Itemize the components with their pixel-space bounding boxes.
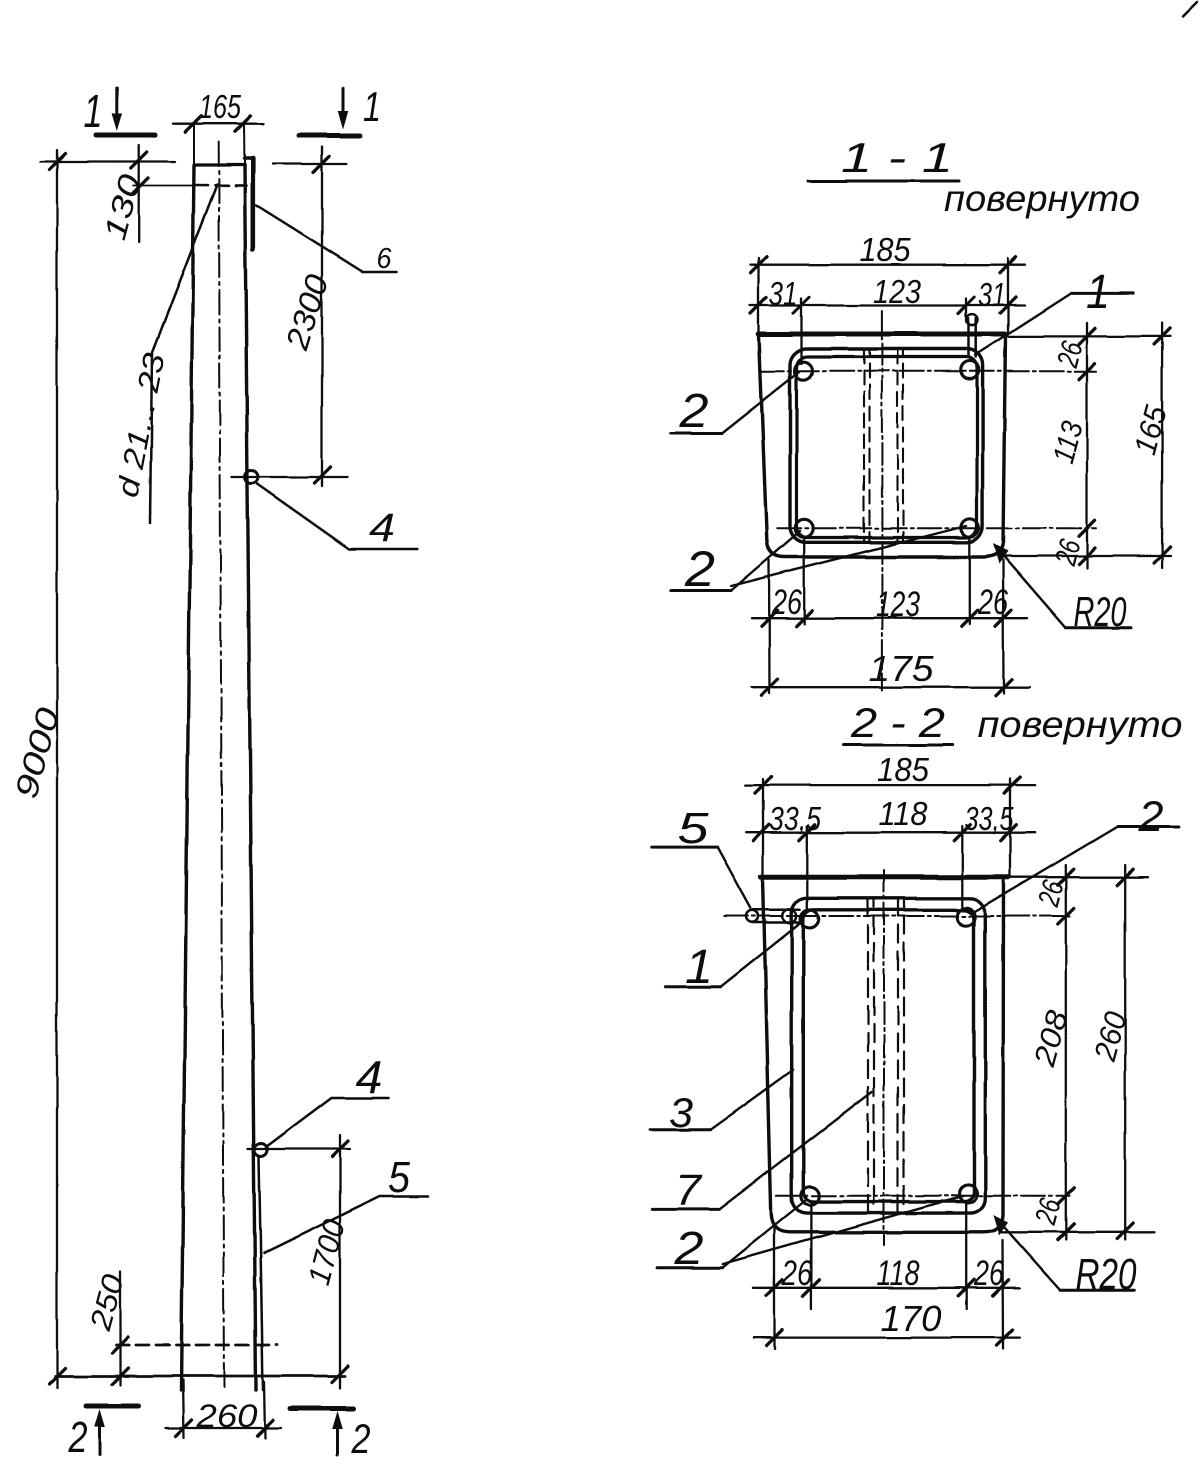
svg-text:2 - 2: 2 - 2: [850, 699, 945, 746]
svg-text:2: 2: [1137, 793, 1163, 841]
svg-text:250: 250: [84, 1271, 131, 1335]
svg-text:2300: 2300: [278, 270, 335, 354]
svg-text:26: 26: [973, 1254, 1004, 1293]
svg-text:1 - 1: 1 - 1: [841, 134, 953, 181]
svg-text:118: 118: [877, 1254, 920, 1293]
svg-text:185: 185: [860, 231, 912, 268]
svg-text:1700: 1700: [301, 1216, 352, 1289]
svg-text:d 21... 23: d 21... 23: [111, 350, 171, 500]
svg-text:185: 185: [877, 751, 930, 788]
svg-text:175: 175: [869, 648, 935, 689]
svg-text:130: 130: [97, 171, 148, 244]
svg-text:R20: R20: [1074, 588, 1127, 635]
svg-text:165: 165: [1127, 401, 1174, 458]
svg-text:повернуто: повернуто: [944, 178, 1140, 219]
svg-text:260: 260: [1087, 1008, 1134, 1065]
svg-text:6: 6: [377, 243, 393, 275]
svg-text:2: 2: [678, 385, 708, 438]
svg-text:1: 1: [84, 85, 103, 137]
svg-text:165: 165: [199, 88, 241, 125]
svg-text:260: 260: [195, 1398, 257, 1434]
svg-text:2: 2: [68, 1413, 88, 1462]
svg-text:2: 2: [684, 541, 715, 597]
svg-text:4: 4: [369, 506, 395, 550]
svg-text:31: 31: [978, 276, 1006, 313]
svg-text:26: 26: [1049, 536, 1088, 570]
svg-text:26: 26: [977, 583, 1008, 622]
svg-text:1: 1: [363, 83, 381, 130]
svg-text:26: 26: [771, 583, 802, 622]
svg-text:33,5: 33,5: [769, 800, 822, 837]
svg-text:7: 7: [675, 1166, 703, 1215]
svg-text:5: 5: [678, 804, 710, 853]
svg-text:5: 5: [388, 1153, 410, 1202]
svg-text:26: 26: [781, 1254, 813, 1293]
svg-text:1: 1: [685, 941, 713, 994]
svg-text:3: 3: [669, 1089, 693, 1136]
svg-text:R20: R20: [1076, 1250, 1137, 1299]
svg-text:123: 123: [876, 585, 920, 624]
svg-text:повернуто: повернуто: [978, 704, 1183, 745]
svg-text:208: 208: [1028, 1007, 1075, 1071]
svg-text:33,5: 33,5: [965, 800, 1014, 837]
svg-text:113: 113: [1047, 418, 1090, 467]
svg-text:123: 123: [873, 273, 922, 310]
svg-text:1: 1: [1086, 266, 1110, 319]
svg-text:4: 4: [356, 1051, 383, 1103]
svg-text:118: 118: [879, 795, 929, 832]
svg-text:2: 2: [673, 1222, 703, 1274]
svg-text:31: 31: [769, 275, 798, 312]
svg-text:2: 2: [351, 1415, 371, 1462]
svg-text:170: 170: [881, 1298, 942, 1339]
svg-text:26: 26: [1051, 338, 1090, 372]
